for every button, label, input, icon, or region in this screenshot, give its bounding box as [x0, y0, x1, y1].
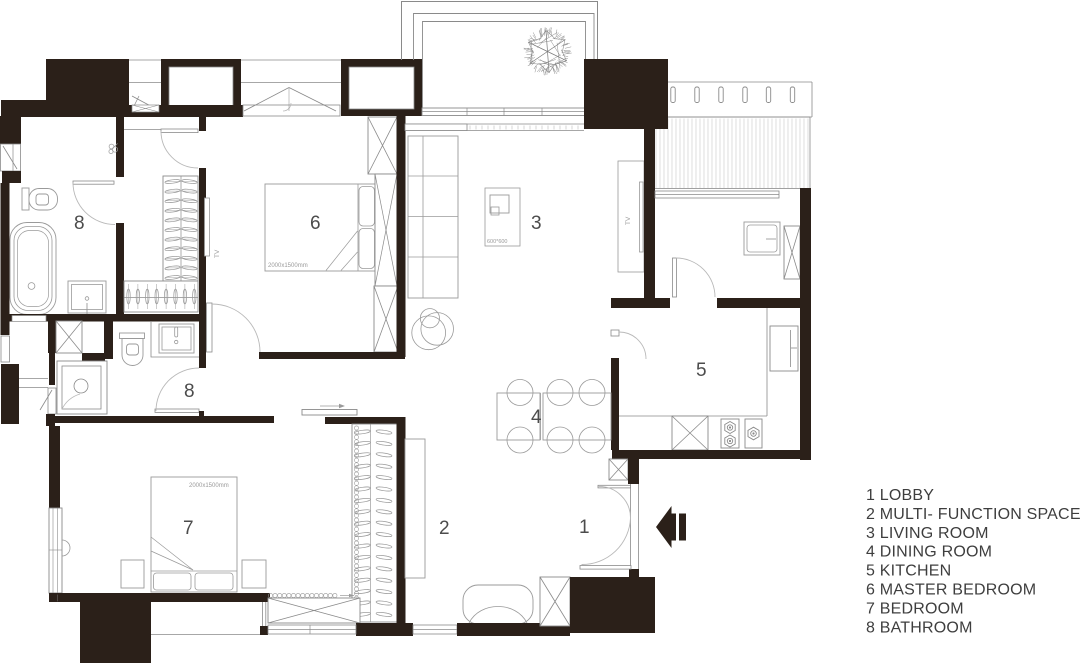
svg-text:7: 7	[183, 518, 194, 539]
svg-text:2 MULTI- FUNCTION SPACE: 2 MULTI- FUNCTION SPACE	[866, 506, 1080, 523]
svg-text:3 LIVING ROOM: 3 LIVING ROOM	[866, 525, 989, 542]
svg-text:8 BATHROOM: 8 BATHROOM	[866, 619, 973, 636]
svg-text:TV: TV	[214, 249, 221, 258]
svg-text:TV: TV	[625, 216, 632, 225]
svg-text:6 MASTER BEDROOM: 6 MASTER BEDROOM	[866, 582, 1036, 599]
svg-text:5 KITCHEN: 5 KITCHEN	[866, 563, 951, 580]
svg-text:5: 5	[696, 360, 707, 381]
svg-text:1 LOBBY: 1 LOBBY	[866, 487, 934, 504]
svg-text:600*600: 600*600	[487, 239, 508, 245]
svg-text:7 BEDROOM: 7 BEDROOM	[866, 600, 964, 617]
svg-text:4: 4	[531, 407, 542, 428]
svg-text:6: 6	[310, 213, 321, 234]
svg-text:3: 3	[531, 213, 542, 234]
svg-text:2: 2	[439, 518, 450, 539]
svg-text:2000x1500mm: 2000x1500mm	[268, 263, 308, 269]
svg-text:1: 1	[579, 517, 590, 538]
svg-text:4 DINING ROOM: 4 DINING ROOM	[866, 544, 992, 561]
svg-text:8: 8	[74, 213, 85, 234]
svg-text:8: 8	[184, 381, 195, 402]
svg-text:2000x1500mm: 2000x1500mm	[189, 483, 229, 489]
